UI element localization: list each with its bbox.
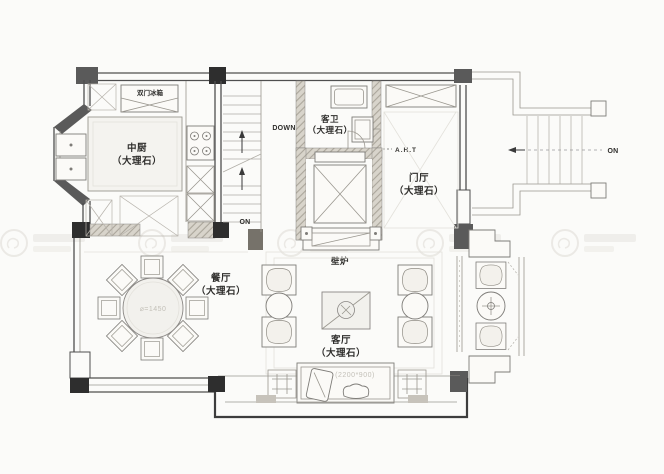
dining-chair <box>98 297 120 319</box>
floor-plan-page: ON <box>0 0 664 474</box>
wall-hatched <box>188 222 215 238</box>
column <box>454 69 472 83</box>
wall-hatched <box>296 81 305 148</box>
elevator-cab <box>314 165 366 223</box>
guest-bath-label: 客卫 <box>320 114 339 124</box>
sofa: (2200*900) <box>297 363 394 403</box>
terrace-pier <box>256 395 276 403</box>
refrigerator-label: 双门冰箱 <box>137 88 164 97</box>
wardrobe <box>386 85 456 107</box>
armchair <box>398 317 432 347</box>
armchair <box>262 265 296 295</box>
living-label: 客厅 <box>330 334 351 346</box>
dining-label: 餐厅 <box>210 272 231 284</box>
wall-pier <box>70 352 90 378</box>
cooktop <box>187 126 214 160</box>
wall-pier <box>457 190 470 224</box>
column <box>70 378 89 393</box>
dining-table-diameter-label: ⌀=1450 <box>140 306 167 313</box>
dining-chair <box>186 297 208 319</box>
terrace-pier <box>408 395 428 403</box>
side-table <box>402 293 428 319</box>
foyer-material-label: （大理石） <box>394 185 444 197</box>
sofa-size-label: (2200*900) <box>335 372 375 379</box>
floor-plan-drawing: ON <box>0 0 664 474</box>
column <box>76 67 98 84</box>
elevator-door <box>315 152 365 162</box>
balcony-table <box>477 292 505 320</box>
dining-material-label: （大理石） <box>196 285 246 297</box>
dining-chair <box>141 338 163 360</box>
stair-on-label: ON <box>239 219 250 226</box>
living-material-label: （大理石） <box>316 347 366 359</box>
dining-chair <box>141 256 163 278</box>
column <box>208 376 225 392</box>
column <box>72 222 90 238</box>
wall-hatched <box>90 224 140 236</box>
exterior-stair-on-label: ON <box>607 148 618 155</box>
kitchen-island <box>88 117 182 191</box>
wall-pier <box>248 229 263 250</box>
column <box>209 67 226 84</box>
dining-table: ⌀=1450 <box>123 278 183 338</box>
refrigerator: 双门冰箱 <box>121 85 178 112</box>
sofa-pillow <box>343 384 369 399</box>
kitchen-material-label: （大理石） <box>112 155 162 167</box>
balcony-chair <box>476 323 506 349</box>
bathtub <box>331 86 367 108</box>
armchair <box>262 317 296 347</box>
fireplace-label: 壁炉 <box>331 256 349 266</box>
balcony-chair <box>476 262 506 288</box>
column <box>450 376 467 392</box>
foyer-label: 门厅 <box>409 172 429 184</box>
armchair <box>398 265 432 295</box>
coffee-table <box>322 292 370 329</box>
stair-down-label: DOWN <box>272 125 295 132</box>
kitchen-label: 中厨 <box>127 142 147 154</box>
stair-post <box>591 183 606 198</box>
guest-bath-material-label: （大理石） <box>307 125 352 135</box>
side-table <box>266 293 292 319</box>
column <box>213 222 229 238</box>
stair-post <box>591 101 606 116</box>
